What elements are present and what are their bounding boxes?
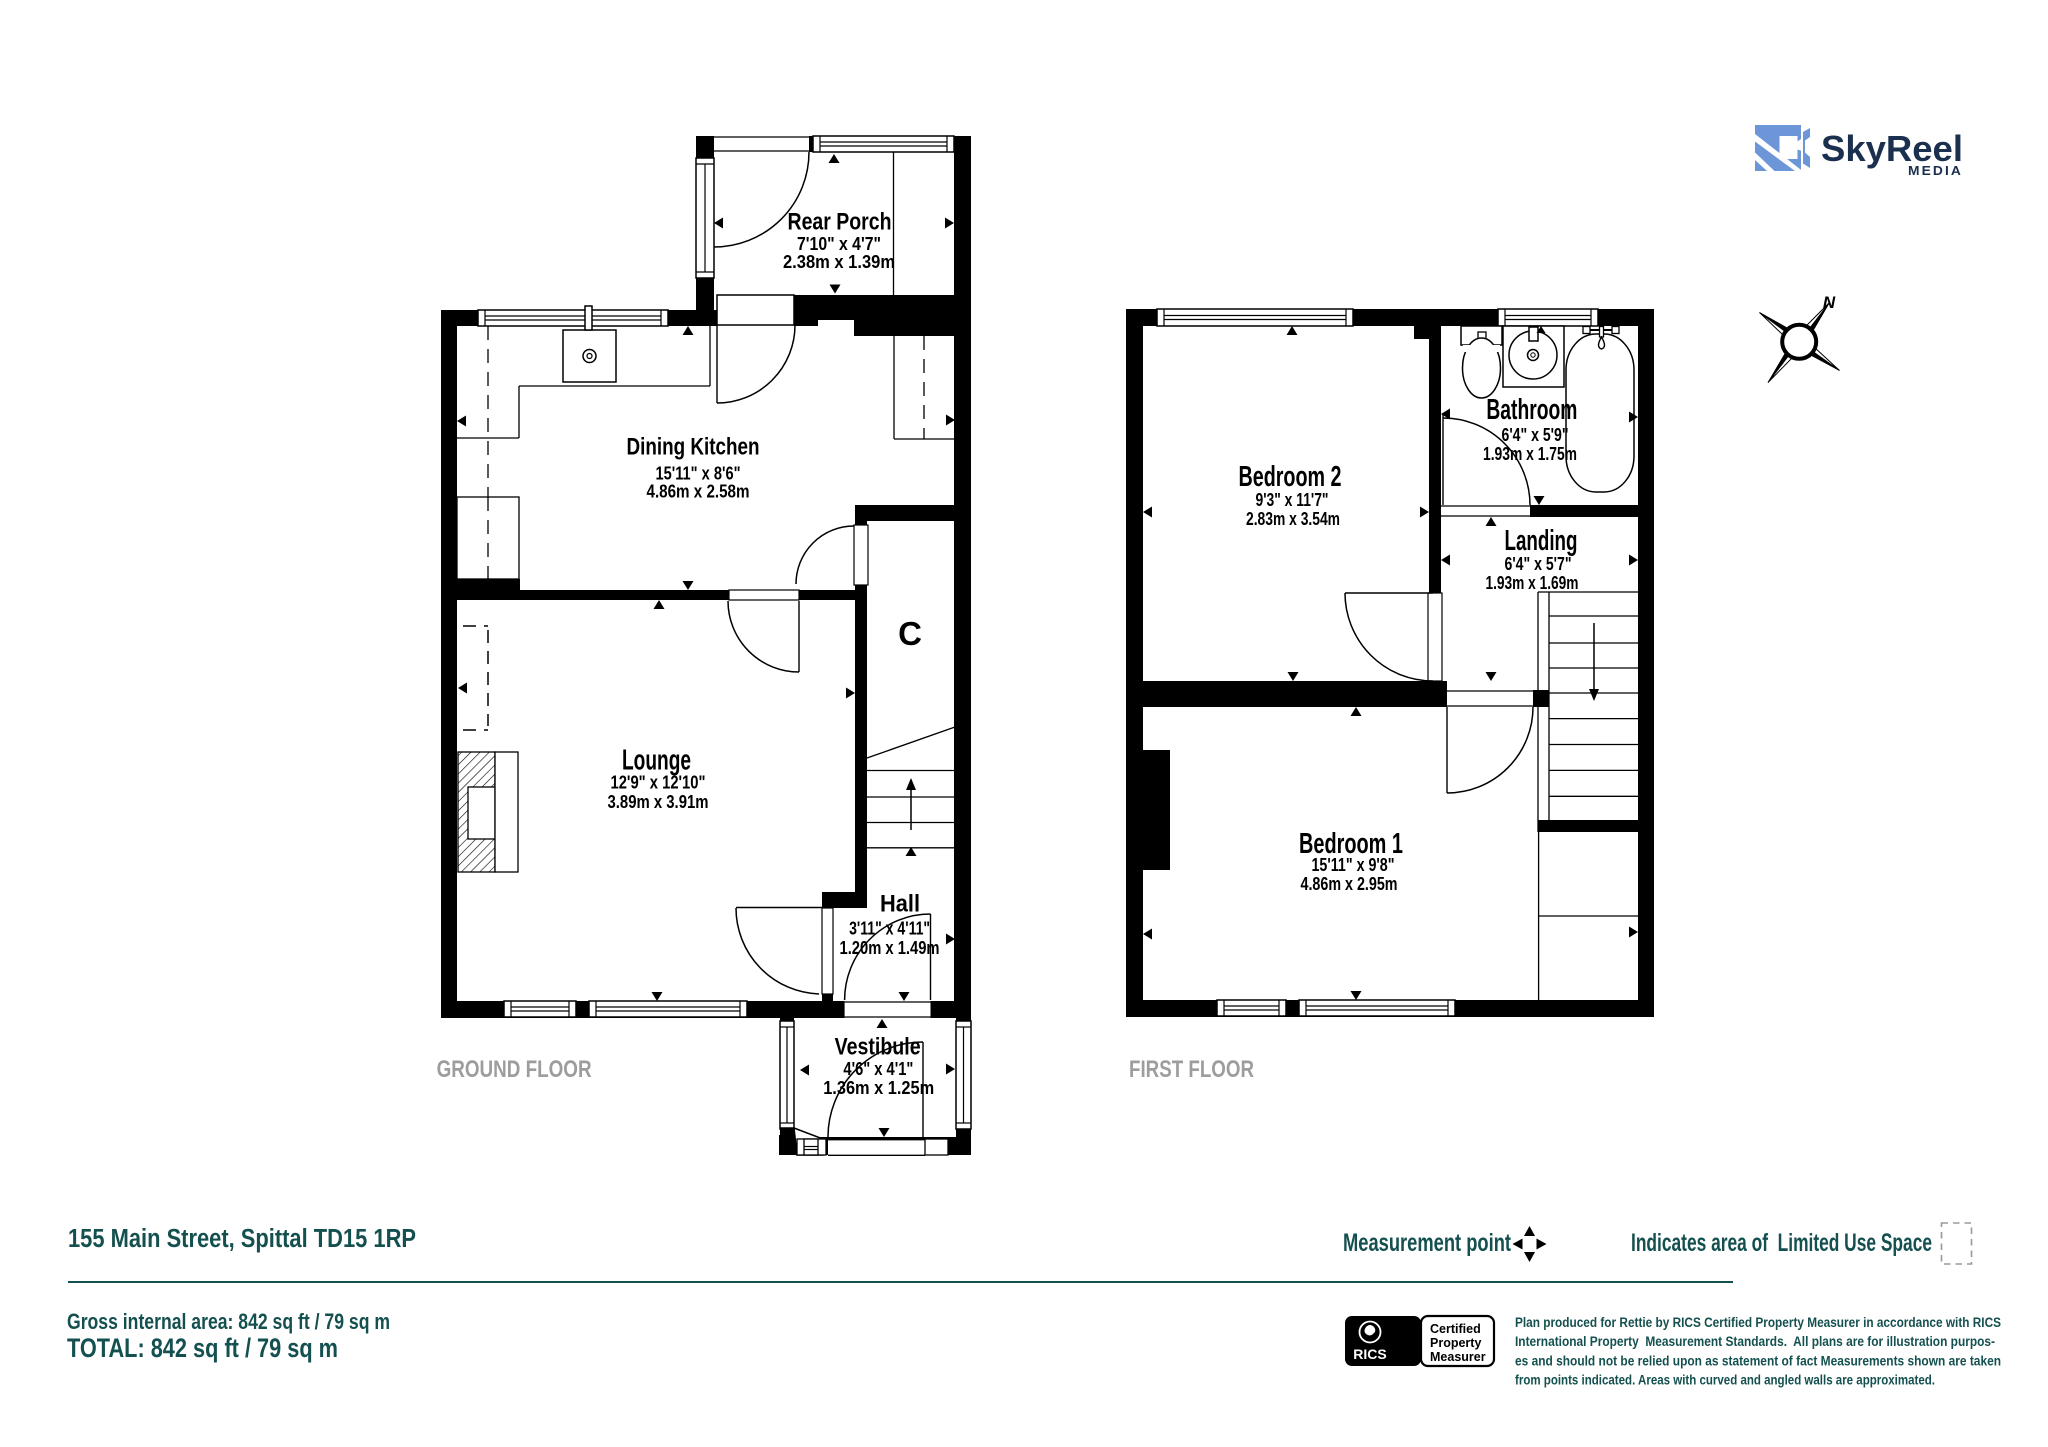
svg-text:Property: Property <box>1430 1336 1481 1350</box>
svg-text:C: C <box>898 615 922 652</box>
svg-text:1.93m x 1.75m: 1.93m x 1.75m <box>1483 444 1577 464</box>
svg-text:1.36m x 1.25m: 1.36m x 1.25m <box>823 1077 934 1098</box>
svg-text:Certified: Certified <box>1430 1322 1481 1336</box>
svg-text:International Property Measur: International Property Measurement Stand… <box>1515 1334 1995 1349</box>
svg-text:N: N <box>1823 293 1836 312</box>
svg-text:3.89m x 3.91m: 3.89m x 3.91m <box>608 791 709 812</box>
svg-text:Measurer: Measurer <box>1430 1350 1486 1364</box>
svg-text:Gross internal area: 842 sq ft: Gross internal area: 842 sq ft / 79 sq m <box>67 1309 390 1334</box>
svg-text:Dining Kitchen: Dining Kitchen <box>627 434 760 461</box>
svg-text:155 Main Street, Spittal TD15: 155 Main Street, Spittal TD15 1RP <box>68 1225 416 1253</box>
svg-text:Bedroom 2: Bedroom 2 <box>1239 461 1342 493</box>
svg-text:3'11" x 4'11": 3'11" x 4'11" <box>849 918 930 939</box>
svg-text:Plan produced for Rettie by RI: Plan produced for Rettie by RICS Certifi… <box>1515 1315 2001 1330</box>
svg-text:MEDIA: MEDIA <box>1908 163 1963 178</box>
svg-text:4.86m x 2.95m: 4.86m x 2.95m <box>1301 874 1398 894</box>
svg-text:2.38m x 1.39m: 2.38m x 1.39m <box>783 251 895 272</box>
svg-text:Indicates area of Limited Use: Indicates area of Limited Use Space <box>1631 1229 1932 1257</box>
svg-text:2.83m x 3.54m: 2.83m x 3.54m <box>1246 509 1340 529</box>
svg-text:Rear Porch: Rear Porch <box>788 209 892 236</box>
svg-text:GROUND FLOOR: GROUND FLOOR <box>437 1056 592 1083</box>
svg-text:es and should not be relied up: es and should not be relied upon as stat… <box>1515 1353 2001 1368</box>
svg-text:1.20m x 1.49m: 1.20m x 1.49m <box>840 937 940 958</box>
svg-text:15'11" x 9'8": 15'11" x 9'8" <box>1312 855 1395 875</box>
svg-text:4.86m x 2.58m: 4.86m x 2.58m <box>647 481 750 502</box>
svg-text:from points indicated. Areas w: from points indicated. Areas with curved… <box>1515 1373 1935 1388</box>
svg-text:Vestibule: Vestibule <box>835 1034 921 1061</box>
svg-text:Bathroom: Bathroom <box>1486 394 1577 426</box>
svg-text:6'4" x 5'7": 6'4" x 5'7" <box>1505 554 1572 574</box>
svg-text:12'9" x 12'10": 12'9" x 12'10" <box>611 772 706 793</box>
svg-text:TOTAL: 842 sq ft / 79 sq m: TOTAL: 842 sq ft / 79 sq m <box>67 1333 338 1363</box>
svg-text:Measurement point: Measurement point <box>1343 1229 1511 1257</box>
svg-text:9'3" x 11'7": 9'3" x 11'7" <box>1256 490 1329 510</box>
svg-text:FIRST FLOOR: FIRST FLOOR <box>1129 1056 1254 1083</box>
svg-text:RICS: RICS <box>1353 1346 1386 1362</box>
svg-text:1.93m x 1.69m: 1.93m x 1.69m <box>1486 573 1579 593</box>
svg-text:Hall: Hall <box>880 891 920 918</box>
svg-text:6'4" x 5'9": 6'4" x 5'9" <box>1502 425 1569 445</box>
svg-text:Landing: Landing <box>1505 525 1578 557</box>
